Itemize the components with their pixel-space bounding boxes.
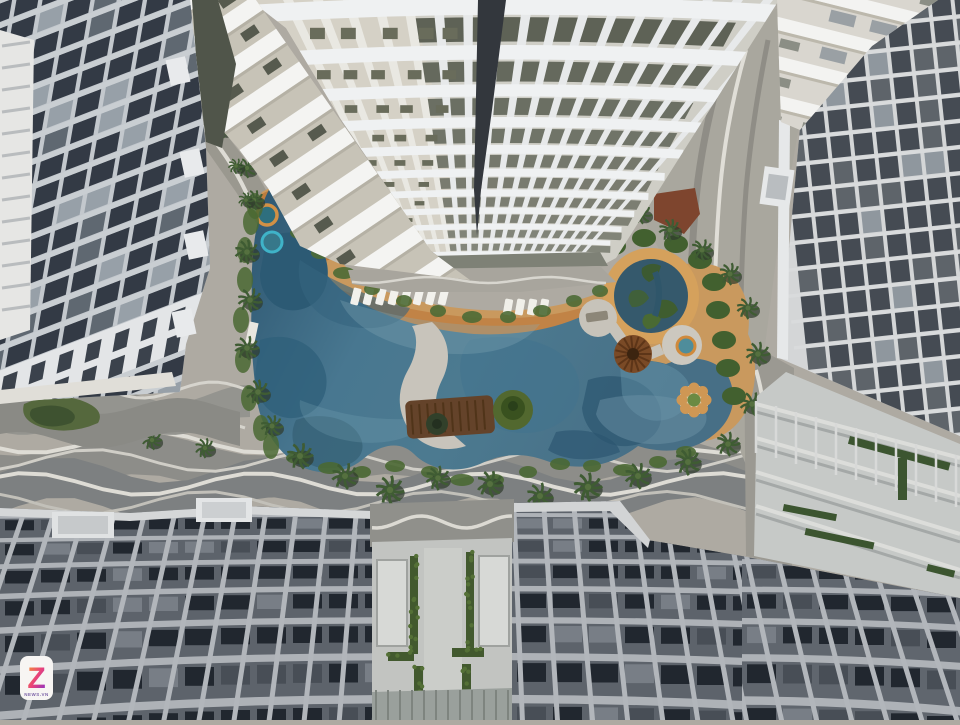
- svg-text:Z: Z: [27, 662, 45, 695]
- svg-text:NEWS.VN: NEWS.VN: [24, 692, 49, 697]
